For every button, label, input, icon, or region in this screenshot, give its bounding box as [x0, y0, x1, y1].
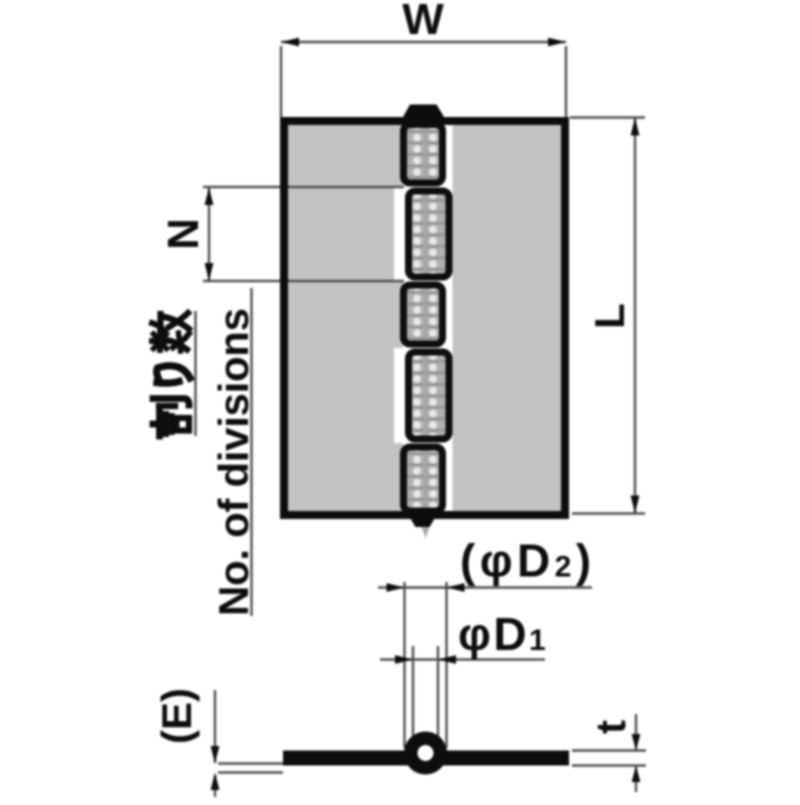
svg-text:(E): (E) — [153, 688, 200, 744]
svg-text:t: t — [587, 720, 634, 734]
svg-text:No. of divisions: No. of divisions — [210, 308, 257, 616]
svg-text:W: W — [402, 0, 444, 44]
svg-text:N: N — [159, 218, 208, 250]
svg-text:(φD2): (φD2) — [460, 535, 595, 587]
svg-text:L: L — [586, 303, 633, 329]
